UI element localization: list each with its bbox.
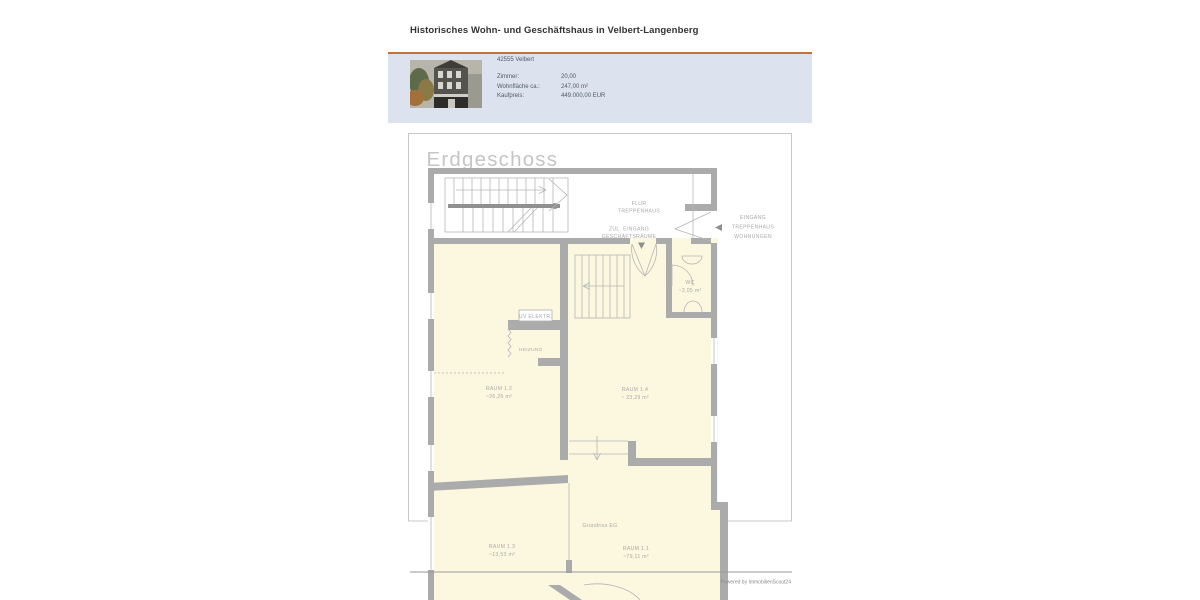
page-title: Historisches Wohn- und Geschäftshaus in … [410,25,699,36]
label-heizung: HEIZUNG [519,347,543,353]
fact-label: Kaufpreis: [497,93,524,99]
stair-handrail [448,204,560,208]
property-location: 42555 Velbert [497,57,534,63]
fact-value: 20,00 [561,74,576,80]
floorplan-image: Erdgeschoss [408,133,792,600]
label-eingang-line3: WOHNUNGEN [734,234,772,240]
fact-label: Zimmer: [497,74,519,80]
room-label-raum-1-1: RAUM 1.1 [623,546,649,552]
label-eingang-line2: TREPPENHAUS [732,225,774,231]
photo-door [448,99,455,108]
label-zul-eingang-line1: ZUL. EINGANG [609,227,649,233]
plan-title: Erdgeschoss [427,148,559,171]
fact-value: 449.000,00 EUR [561,93,605,99]
fact-row-kaufpreis: Kaufpreis: 449.000,00 EUR [497,93,757,103]
photo-sign-band [434,94,468,97]
fact-value: 247,00 m² [561,84,588,90]
powered-by-credit: Powered by ImmobilienScout24 [721,580,792,586]
label-zul-eingang-line2: GESCHÄFTSRÄUME [602,233,657,240]
fact-row-wohnflaeche: Wohnfläche ca.: 247,00 m² [497,84,757,94]
property-info-box: 42555 Velbert Zimmer: 20,00 Wohnfläche c… [388,54,812,123]
room-label-raum-1-3: RAUM 1.3 [489,544,515,550]
room-label-wc: WC [685,280,694,286]
area-label-raum-1-1: ~79,11 m² [623,554,649,560]
area-label-raum-1-2: ~26,26 m² [486,394,512,400]
property-facts: Zimmer: 20,00 Wohnfläche ca.: 247,00 m² … [497,74,757,103]
label-flur-line2: TREPPENHAUS [618,209,660,215]
label-uv-elektr: UV ELEKTR. [519,314,552,320]
area-label-wc: ~2,05 m² [678,288,701,294]
fact-label: Wohnfläche ca.: [497,84,540,90]
room-fill-layer [434,238,720,600]
label-eingang-line1: EINGANG [740,215,766,221]
property-photo [410,60,482,108]
area-label-raum-1-4: ~ 23,29 m² [621,395,649,401]
fact-row-zimmer: Zimmer: 20,00 [497,74,757,84]
plan-caption: Grundriss EG [582,523,617,529]
label-flur-line1: FLUR [632,201,647,207]
area-label-raum-1-3: ~13,53 m² [489,552,515,558]
room-label-raum-1-4: RAUM 1.4 [622,387,648,393]
room-label-raum-1-2: RAUM 1.2 [486,386,512,392]
